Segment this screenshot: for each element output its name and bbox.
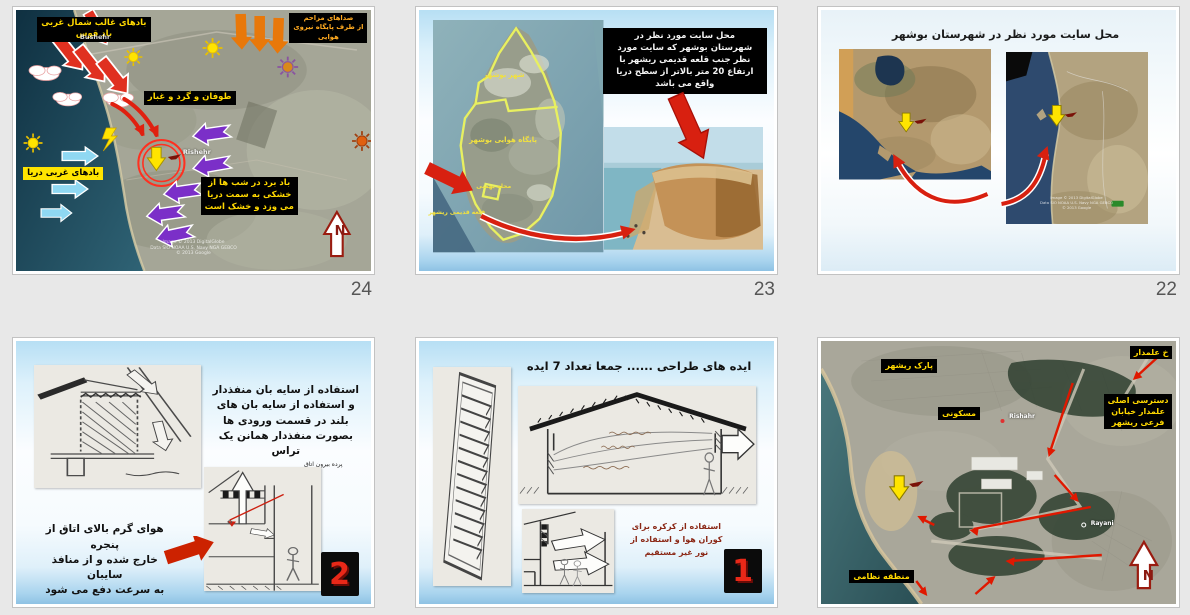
vent-detail-sketch (522, 509, 614, 593)
red-pointer-arrow (162, 536, 215, 568)
slide-thumbnail-24[interactable]: بادهای غالب شمال غربی باد قوس صداهای مزا… (12, 6, 375, 275)
slide-thumbnail-shading[interactable]: استفاده از سایه بان منفذدار و استفاده از… (12, 337, 375, 608)
label-alamdar-street: خ علمدار (1130, 346, 1173, 359)
compass-letter: N (335, 224, 346, 239)
label-night-land-breeze: باد برد در شب ها از خشکی به سمت دریا می … (201, 177, 298, 215)
label-noise: صداهای مزاحم از طرف پایگاه نیروی هوایی (289, 13, 367, 44)
map-label-castle: قلعه قدیمی ریشهر (424, 208, 489, 218)
coastal-zoom-map: Image © 2013 DigitalGlobe Data SIO NOAA … (1006, 52, 1148, 224)
rishahr-dot (1001, 419, 1005, 423)
slide-thumbnail-22[interactable]: محل سایت مورد نظر در شهرستان بوشهر Image (817, 6, 1180, 275)
louver-note: استفاده از کرکره برای کوران هوا و استفاد… (621, 521, 731, 559)
satellite-map-access (821, 341, 1176, 604)
slide-2-shading-idea: استفاده از سایه بان منفذدار و استفاده از… (16, 341, 371, 604)
label-rishehr-park: پارک ریشهر (881, 359, 937, 372)
idea-number-badge: 2 (321, 552, 359, 596)
map-label-airbase: پایگاه هوایی بوشهر (465, 135, 541, 147)
beach-photo (604, 127, 764, 250)
slide-number-23: 23 (415, 279, 775, 301)
site-description-box: محل سایت مورد نظر در شهرستان بوشهر که سا… (603, 28, 767, 93)
map-credits: Image © 2013 DigitalGlobe Data SIO NOAA … (115, 240, 271, 258)
slide-title: محل سایت مورد نظر در شهرستان بوشهر (857, 28, 1155, 41)
slide-rishehr-access-map: خ علمدار پارک ریشهر مسکونی دسترسی اصلی ع… (821, 341, 1176, 604)
map-label-rayani: Rayani (1091, 520, 1114, 527)
map-label-rishehr: Rishehr (183, 148, 211, 156)
map-label-bushehr-city: شهر بوشهر (479, 70, 528, 82)
map-label-bushehr: Bushehr (80, 33, 110, 41)
slide-24-wind-analysis: بادهای غالب شمال غربی باد قوس صداهای مزا… (16, 10, 371, 271)
slide-thumbnail-access-map[interactable]: خ علمدار پارک ریشهر مسکونی دسترسی اصلی ع… (817, 337, 1180, 608)
slide-number-22: 22 (817, 279, 1177, 301)
label-military-zone: منطقه نظامی (849, 570, 913, 583)
slide-title: ایده های طراحی ...... جمعا تعداد 7 ایده (518, 359, 759, 373)
shading-text: استفاده از سایه بان منفذدار و استفاده از… (211, 383, 360, 459)
hot-air-text: هوای گرم بالای اتاق از پنجره خارج شده و … (34, 522, 176, 598)
slide-sorter-canvas: { "palette": { "page_bg": "#e8e8e8", "re… (0, 0, 1190, 615)
label-west-sea-winds: بادهای غربی دریا (23, 167, 103, 181)
iran-overview-map (839, 49, 992, 180)
slide-thumbnail-ideas[interactable]: ایده های طراحی ...... جمعا تعداد 7 ایده (415, 337, 778, 608)
slide-23-site-location: شهر بوشهر پایگاه هوایی بوشهر محله بهمنی … (419, 10, 774, 271)
slide-1-design-ideas: ایده های طراحی ...... جمعا تعداد 7 ایده (419, 341, 774, 604)
house-section-sketch (518, 386, 756, 504)
label-residential: مسکونی (938, 407, 980, 420)
label-main-access: دسترسی اصلی علمدار خیابان فرعی ریشهر (1104, 394, 1173, 430)
map-label-bahmani: محله بهمنی (472, 182, 515, 192)
idea-number-badge: 1 (724, 549, 762, 593)
satellite-map-wind (16, 10, 371, 271)
map-credits: Image © 2013 DigitalGlobe Data SIO NOAA … (1031, 196, 1122, 211)
compass-letter: N (1143, 568, 1154, 584)
room-vent-sketch (204, 467, 321, 591)
slide-number-24: 24 (12, 279, 372, 301)
louver-sketch (433, 367, 511, 585)
label-storm-dust: طوفان و گرد و غبار (144, 91, 236, 105)
canopy-section-sketch (34, 365, 201, 489)
slide-22-region-location: محل سایت مورد نظر در شهرستان بوشهر Image (821, 10, 1176, 271)
slide-thumbnail-23[interactable]: شهر بوشهر پایگاه هوایی بوشهر محله بهمنی … (415, 6, 778, 275)
map-label-rishahr: Rishahr (1009, 413, 1035, 420)
